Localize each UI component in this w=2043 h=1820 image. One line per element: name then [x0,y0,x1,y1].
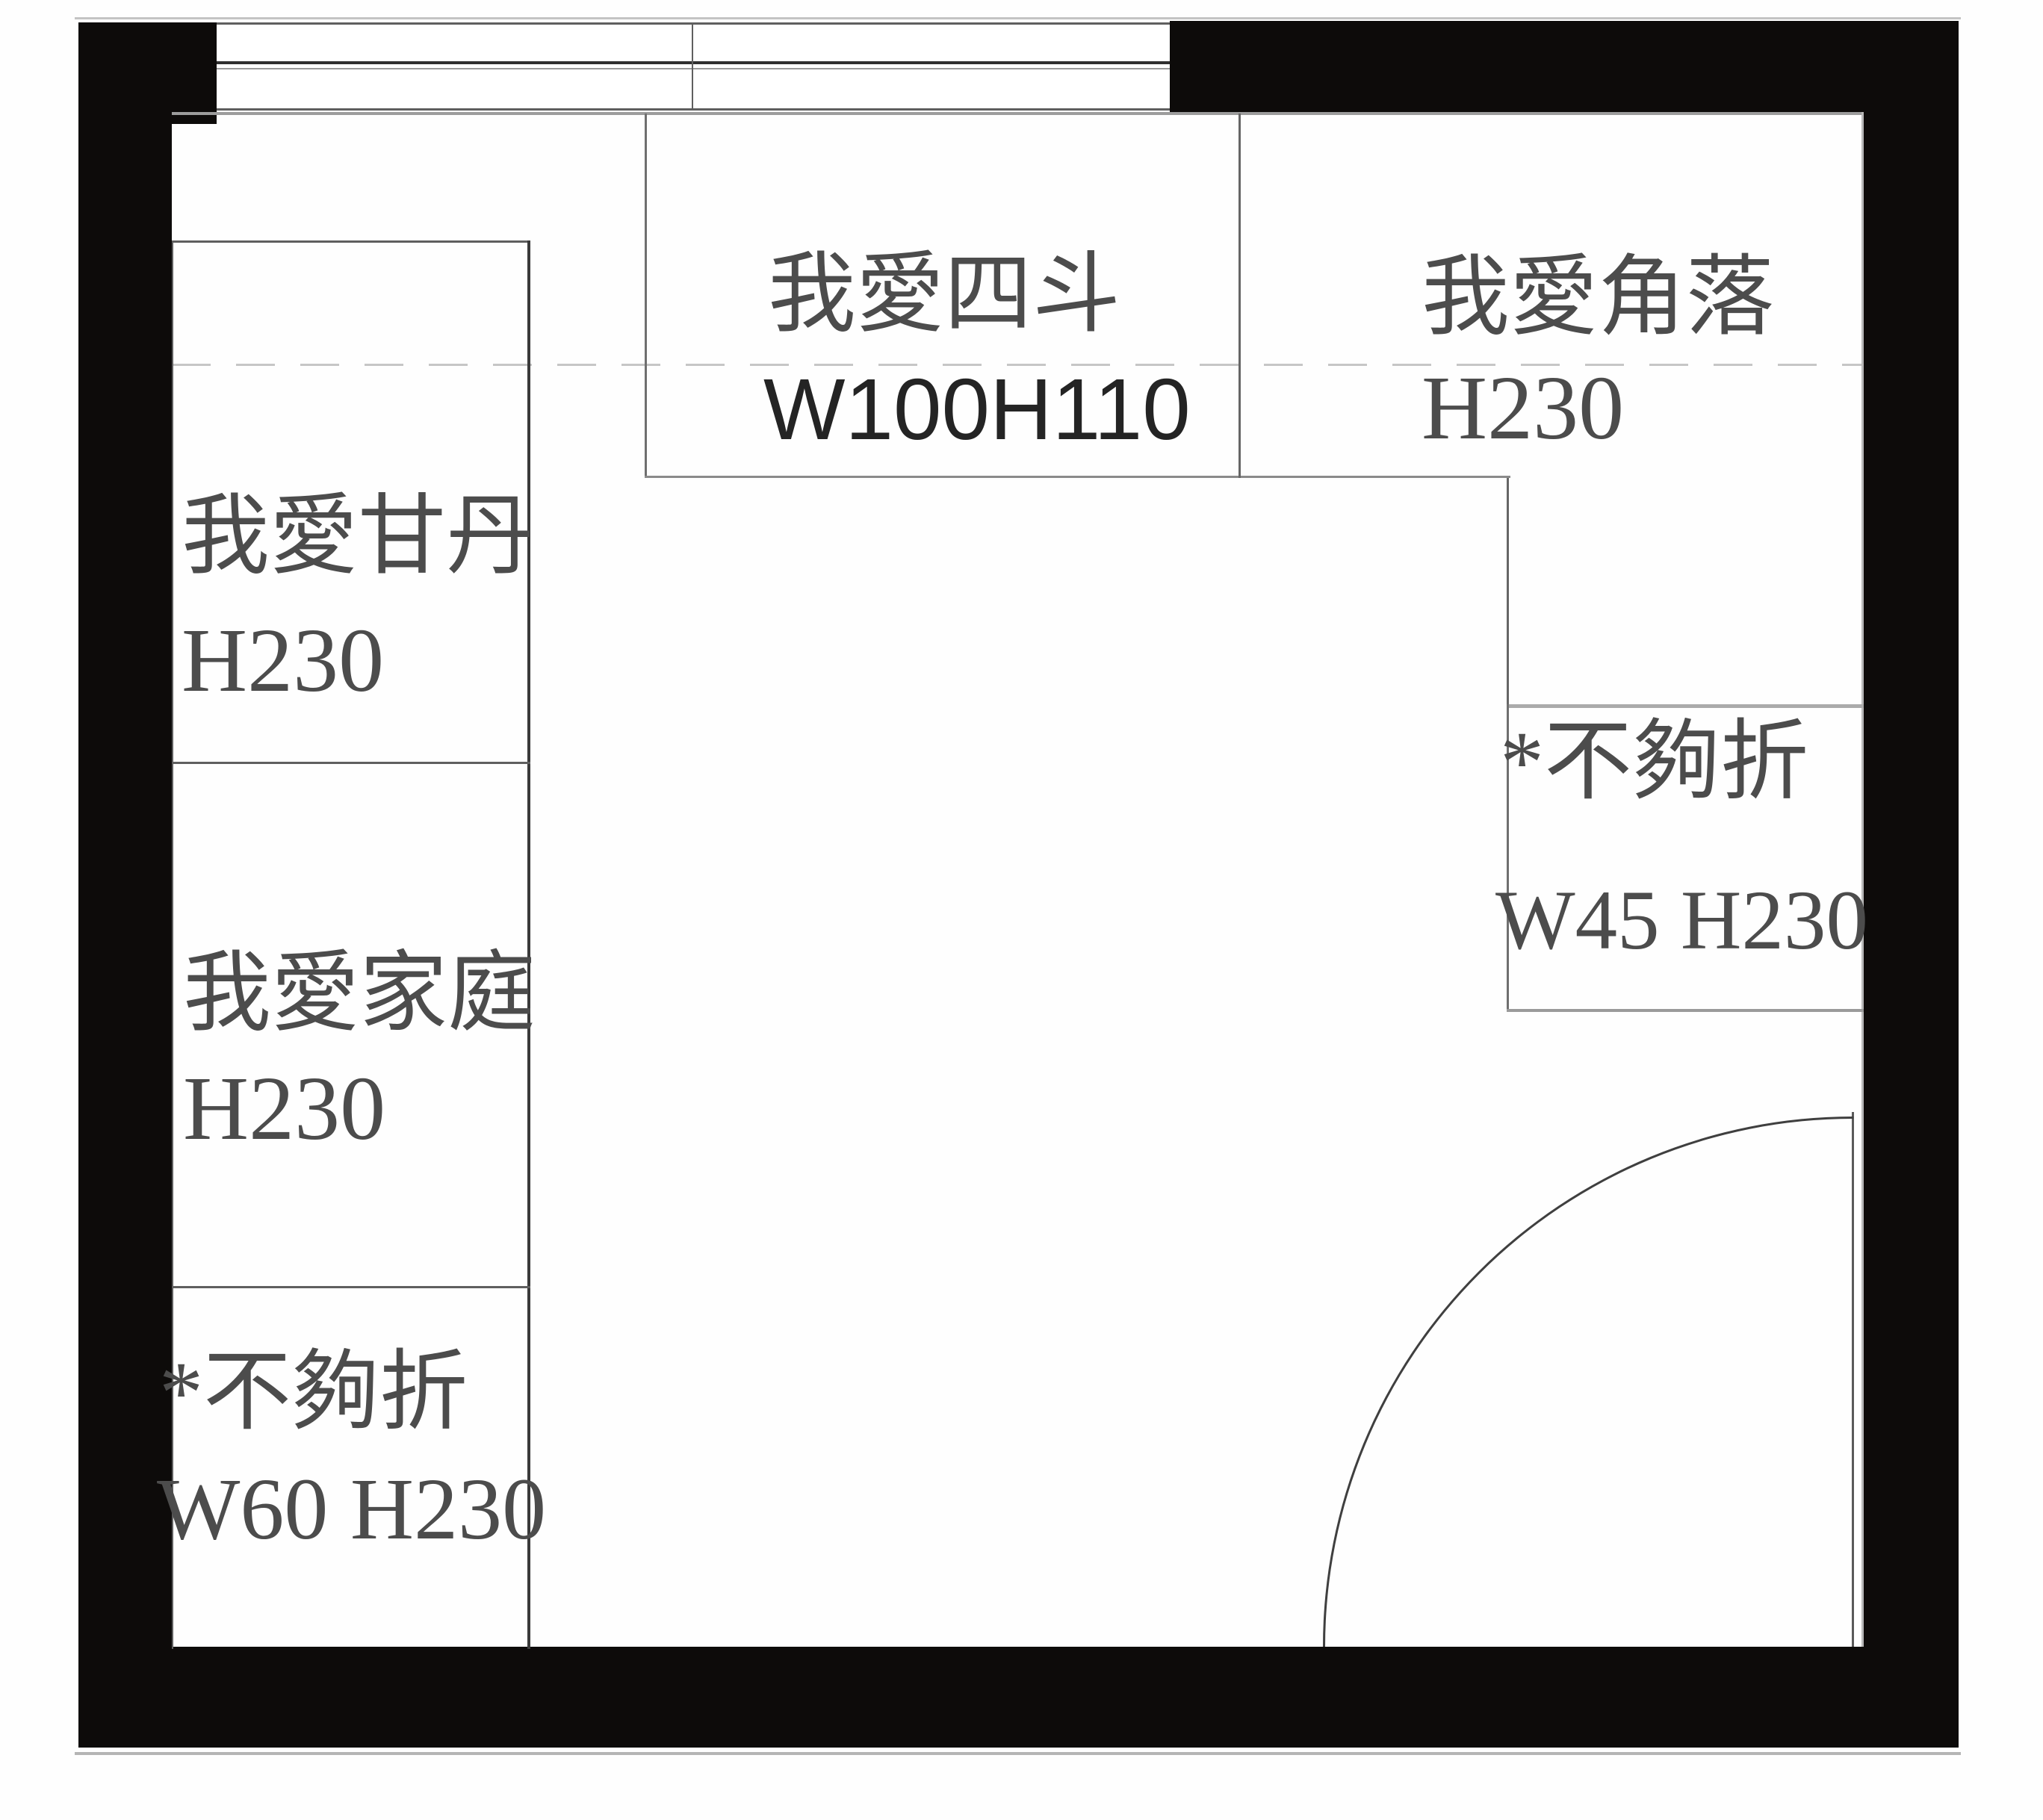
dimension-cabinet-corner: H230 [1422,363,1624,454]
right-box-top-edge [1507,704,1864,708]
window [217,22,1170,111]
corner-cabinet-step-edge [1507,478,1509,707]
dimension-cabinet-gandan: H230 [182,615,384,706]
dimension-cabinet-family: H230 [183,1063,385,1155]
right-box-bottom-edge [1507,1009,1864,1012]
dimension-cabinet-fold-left: W60 H230 [157,1465,546,1553]
top-cabinet-bottom-edge [645,476,1510,478]
window-bottom-line [217,108,1170,111]
label-cabinet-fold-right: *不夠折 [1500,718,1808,807]
dimension-cabinet-fold-right: W45 H230 [1495,878,1868,963]
wall-right [1864,21,1959,1748]
dimension-cabinet-chest: W100H110 [763,366,1191,453]
window-mid-line [217,61,1170,64]
left-column-divider-2 [172,1286,530,1288]
window-top-line [217,22,1170,25]
label-cabinet-family: 我愛家庭 [183,950,536,1038]
window-mullion [692,22,693,111]
floor-plan: 我愛甘丹 H230 我愛家庭 H230 *不夠折 W60 H230 我愛四斗 W… [0,0,2043,1820]
wall-top [1170,21,1959,112]
outer-border-bottom [75,1752,1961,1755]
top-cabinet-left-edge [645,114,647,478]
wall-bottom [78,1647,1959,1748]
label-cabinet-corner: 我愛角落 [1422,254,1774,342]
top-cabinet-divider [1238,114,1241,478]
label-cabinet-fold-left: *不夠折 [159,1349,468,1437]
outer-border-top [75,17,1961,19]
label-cabinet-gandan: 我愛甘丹 [182,493,534,581]
door-swing-arc [1323,1116,1853,1647]
label-cabinet-chest: 我愛四斗 [768,251,1120,339]
wall-inner-edge-top [172,112,1864,115]
left-column-top-edge [172,240,530,243]
left-column-divider-1 [172,762,530,764]
window-mid-thin-line [217,68,1170,69]
